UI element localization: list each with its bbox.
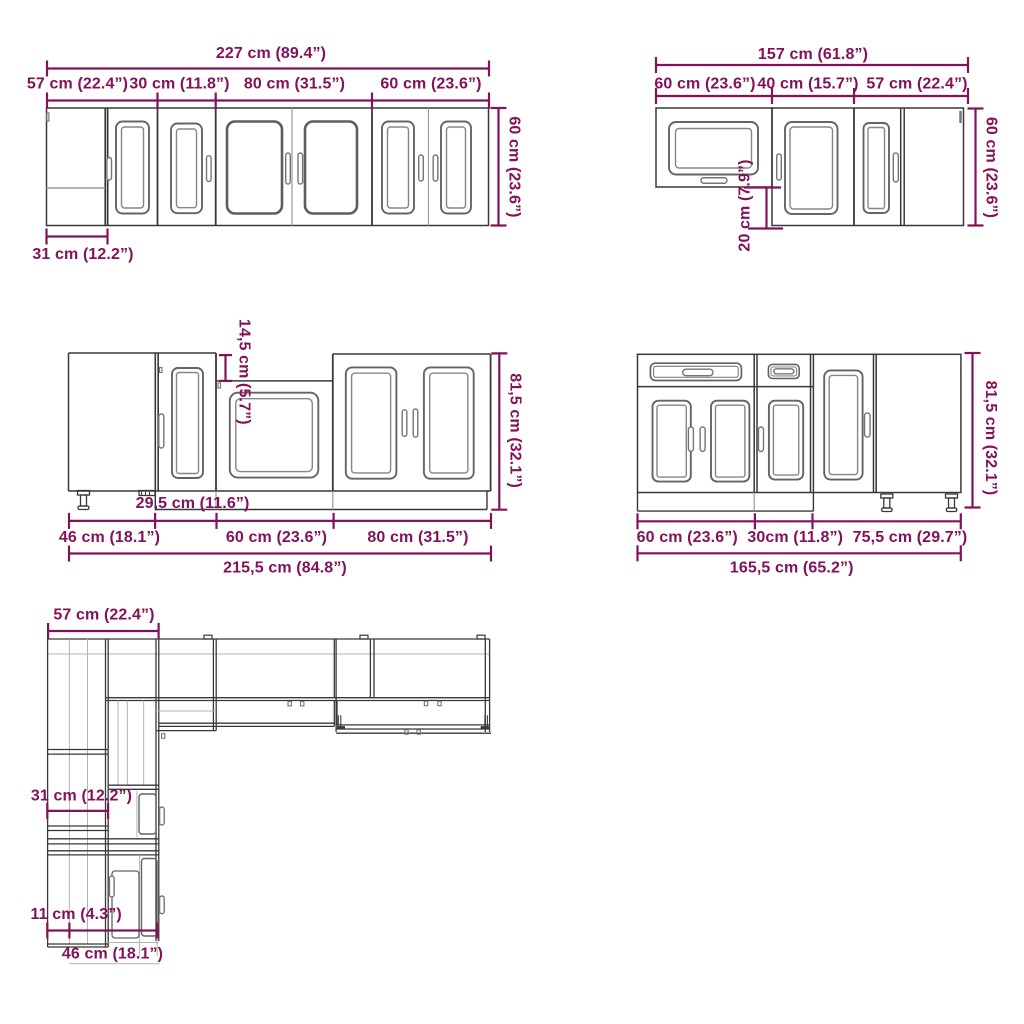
- svg-text:60 cm (23.6”): 60 cm (23.6”): [983, 117, 1000, 218]
- svg-text:20 cm (7.9”): 20 cm (7.9”): [737, 159, 754, 251]
- svg-text:11 cm (4.3”): 11 cm (4.3”): [31, 906, 122, 923]
- svg-text:227 cm (89.4”): 227 cm (89.4”): [216, 45, 326, 62]
- svg-text:57 cm (22.4”): 57 cm (22.4”): [27, 76, 128, 93]
- svg-text:60 cm (23.6”): 60 cm (23.6”): [654, 76, 755, 93]
- svg-text:165,5 cm (65.2”): 165,5 cm (65.2”): [730, 559, 854, 576]
- svg-text:31 cm (12.2”): 31 cm (12.2”): [31, 787, 132, 804]
- svg-text:60 cm (23.6”): 60 cm (23.6”): [380, 76, 481, 93]
- svg-text:60 cm (23.6”): 60 cm (23.6”): [506, 116, 523, 217]
- svg-text:157 cm (61.8”): 157 cm (61.8”): [758, 46, 868, 63]
- svg-text:57 cm (22.4”): 57 cm (22.4”): [53, 607, 154, 624]
- svg-text:46 cm (18.1”): 46 cm (18.1”): [59, 529, 160, 546]
- svg-text:60 cm (23.6”): 60 cm (23.6”): [226, 529, 327, 546]
- svg-text:46 cm (18.1”): 46 cm (18.1”): [62, 945, 163, 962]
- svg-text:215,5 cm (84.8”): 215,5 cm (84.8”): [223, 559, 347, 576]
- svg-text:31 cm (12.2”): 31 cm (12.2”): [32, 246, 133, 263]
- svg-text:30cm (11.8”): 30cm (11.8”): [747, 529, 843, 546]
- svg-text:29,5 cm (11.6”): 29,5 cm (11.6”): [136, 495, 250, 512]
- svg-text:60 cm (23.6”): 60 cm (23.6”): [637, 529, 738, 546]
- svg-text:40 cm (15.7”): 40 cm (15.7”): [757, 76, 858, 93]
- svg-text:80 cm (31.5”): 80 cm (31.5”): [244, 76, 345, 93]
- svg-text:75,5 cm (29.7”): 75,5 cm (29.7”): [853, 529, 968, 546]
- svg-text:30 cm (11.8”): 30 cm (11.8”): [129, 76, 229, 93]
- svg-text:81,5 cm (32.1”): 81,5 cm (32.1”): [507, 373, 524, 488]
- svg-text:80 cm (31.5”): 80 cm (31.5”): [367, 529, 468, 546]
- svg-text:14,5 cm (5.7”): 14,5 cm (5.7”): [236, 319, 253, 425]
- svg-text:81,5 cm (32.1”): 81,5 cm (32.1”): [982, 381, 999, 496]
- svg-text:57 cm (22.4”): 57 cm (22.4”): [866, 76, 967, 93]
